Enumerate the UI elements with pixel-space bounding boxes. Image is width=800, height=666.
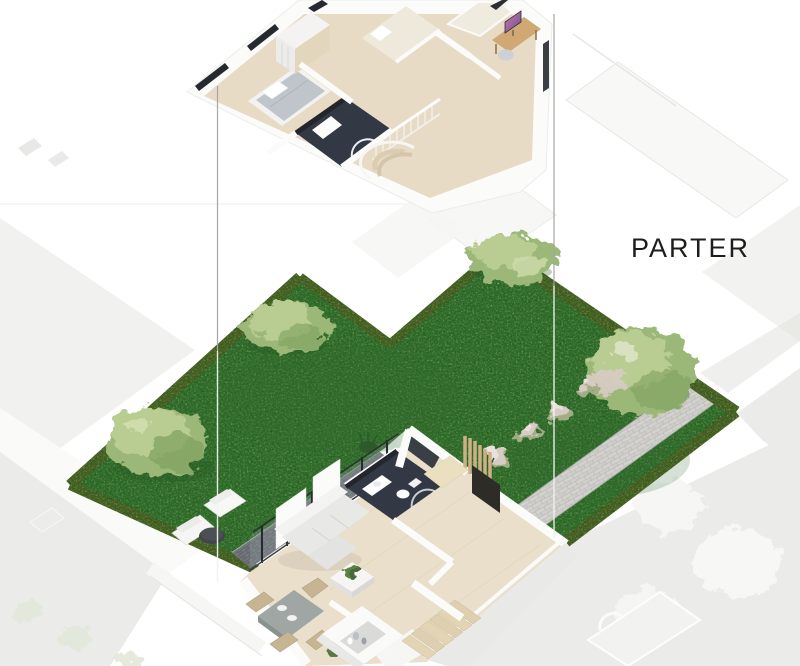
tree-north: [466, 232, 558, 284]
tree-upper-left: [243, 302, 331, 354]
toilet: [397, 490, 410, 499]
tree-large-west: [106, 408, 210, 476]
desk-chair: [498, 50, 514, 61]
floor-label: PARTER: [631, 233, 750, 263]
render-canvas: PARTER: [0, 0, 800, 666]
floor-plan-render: PARTER: [0, 0, 800, 666]
